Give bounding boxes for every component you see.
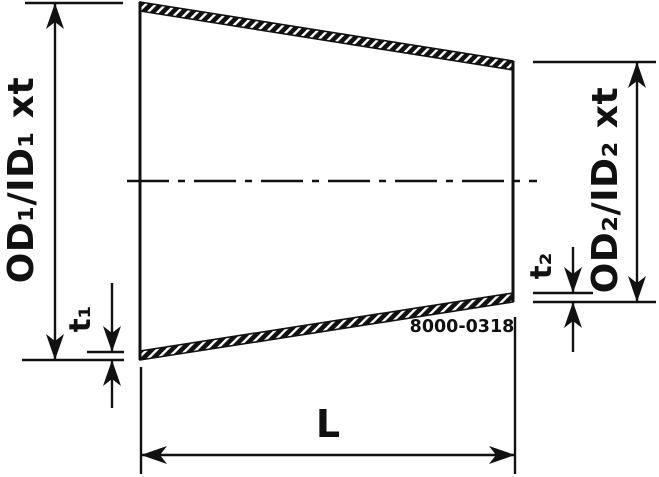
part-number-text: 8000-0318 — [392, 317, 532, 337]
t1-wall-thickness-label: t₁ — [63, 279, 97, 359]
reducer-technical-drawing: OD₁/ID₁ xt OD₂/ID₂ xt t₁ t₂ L 8000-0318 — [0, 0, 659, 477]
length-dimension-label: L — [278, 404, 378, 444]
od1-id1-dimension-label: OD₁/ID₁ xt — [2, 60, 42, 300]
od2-id2-dimension-label: OD₂/ID₂ xt — [586, 70, 626, 310]
t2-wall-thickness-label: t₂ — [524, 226, 558, 306]
top-wall-section — [140, 2, 513, 70]
